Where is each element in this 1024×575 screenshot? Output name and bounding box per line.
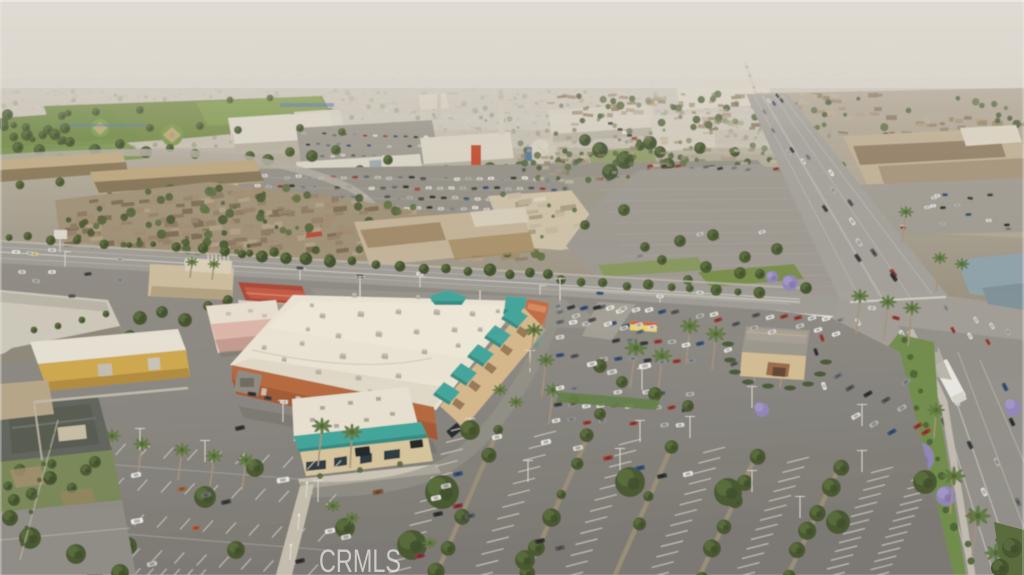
svg-text:CRMLS: CRMLS: [319, 543, 401, 575]
